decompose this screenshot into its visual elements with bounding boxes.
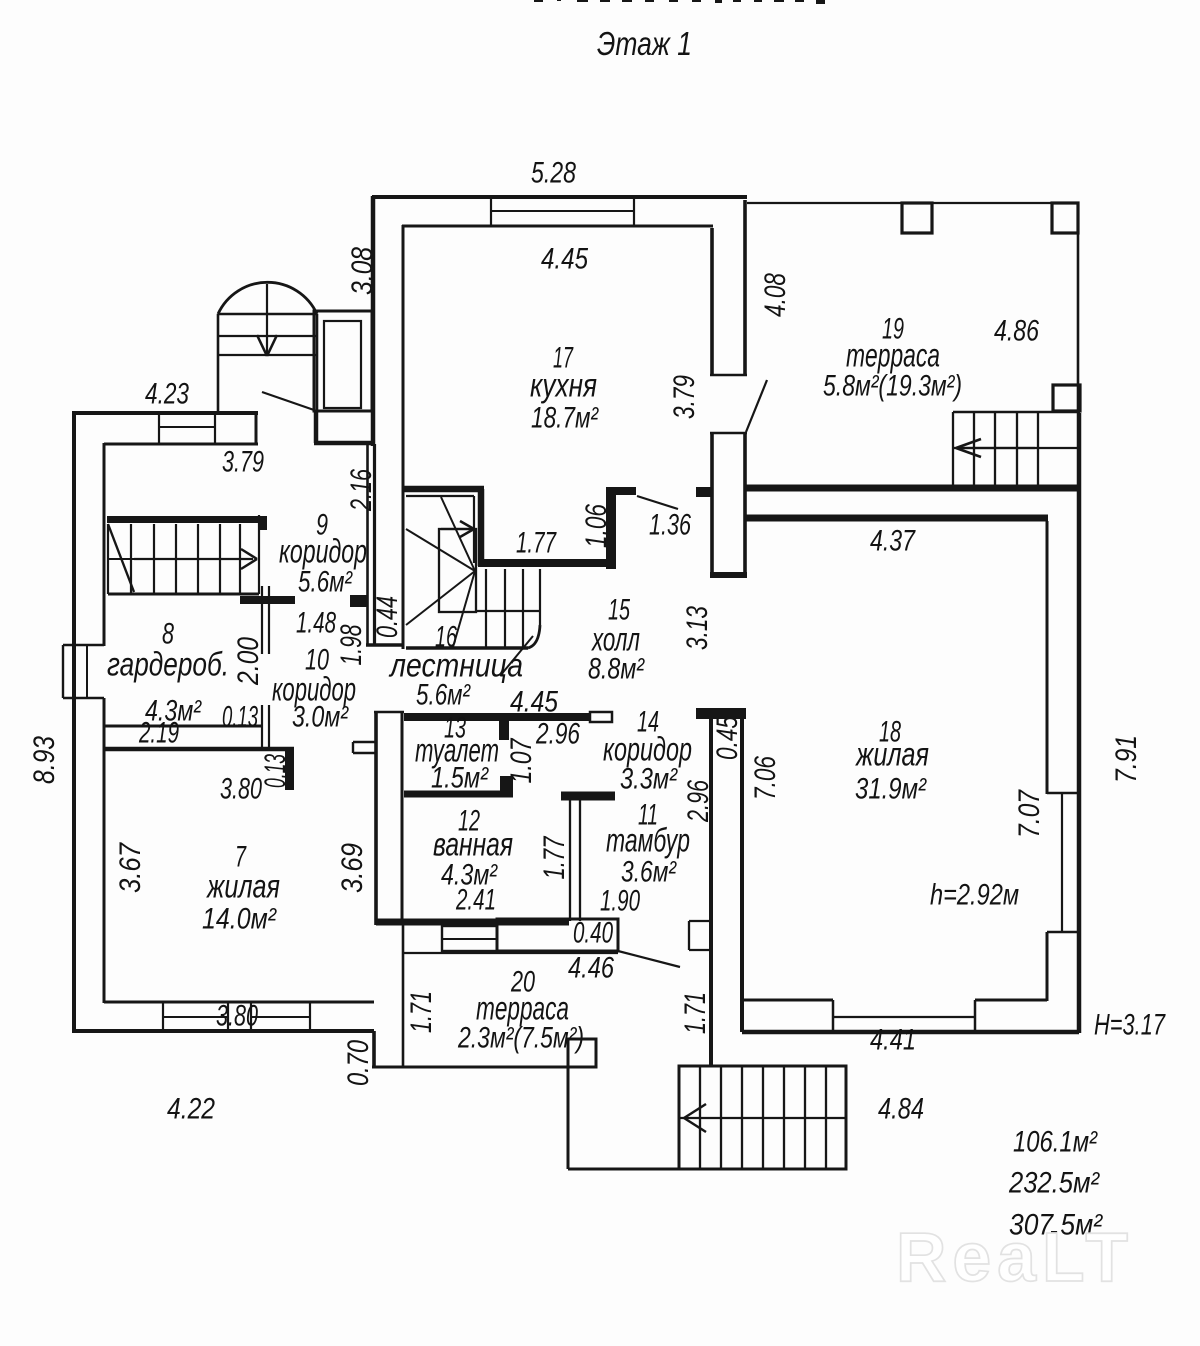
svg-text:1.90: 1.90	[600, 885, 640, 918]
svg-text:4.84: 4.84	[878, 1093, 924, 1126]
svg-text:4.23: 4.23	[145, 378, 189, 411]
svg-text:4.45: 4.45	[510, 686, 558, 719]
svg-text:106.1м²: 106.1м²	[1013, 1126, 1098, 1159]
svg-text:2.3м²(7.5м²): 2.3м²(7.5м²)	[457, 1022, 584, 1055]
svg-text:18.7м²: 18.7м²	[531, 402, 599, 435]
svg-text:H=3.17: H=3.17	[1094, 1009, 1166, 1042]
svg-text:5.8м²(19.3м²): 5.8м²(19.3м²)	[823, 370, 962, 403]
svg-text:1.77: 1.77	[516, 527, 557, 560]
svg-text:1.06: 1.06	[580, 504, 613, 548]
svg-text:2.00: 2.00	[232, 637, 265, 686]
svg-text:4.46: 4.46	[568, 952, 614, 985]
svg-text:7.06: 7.06	[749, 756, 782, 800]
svg-text:4.41: 4.41	[870, 1024, 916, 1057]
svg-text:коридор: коридор	[279, 533, 367, 570]
svg-text:3.67: 3.67	[114, 842, 147, 893]
svg-text:0.13: 0.13	[222, 701, 258, 734]
svg-text:жилая: жилая	[854, 736, 929, 773]
svg-text:0.40: 0.40	[573, 917, 613, 950]
svg-text:тамбур: тамбур	[606, 822, 690, 859]
svg-text:4.45: 4.45	[541, 243, 588, 276]
svg-text:8.93: 8.93	[28, 736, 61, 784]
svg-text:терраса: терраса	[846, 337, 940, 374]
svg-text:1.48: 1.48	[296, 607, 336, 640]
svg-text:3.79: 3.79	[668, 375, 701, 419]
svg-text:4.08: 4.08	[759, 273, 792, 317]
svg-text:1.71: 1.71	[405, 991, 438, 1033]
svg-text:3.6м²: 3.6м²	[621, 856, 677, 889]
svg-text:0.70: 0.70	[342, 1040, 375, 1086]
svg-text:5.28: 5.28	[531, 157, 576, 190]
svg-text:1.77: 1.77	[538, 836, 571, 880]
svg-text:2.16: 2.16	[345, 469, 378, 512]
svg-text:1.07: 1.07	[505, 737, 538, 783]
svg-text:7.07: 7.07	[1013, 789, 1046, 838]
svg-text:4.22: 4.22	[167, 1093, 215, 1126]
svg-text:3.80: 3.80	[220, 773, 262, 806]
svg-text:1.71: 1.71	[679, 992, 712, 1034]
svg-text:0.45: 0.45	[711, 716, 744, 760]
svg-text:0.44: 0.44	[371, 596, 404, 638]
svg-text:31.9м²: 31.9м²	[855, 773, 927, 806]
svg-text:h=2.92м: h=2.92м	[930, 879, 1019, 912]
svg-text:232.5м²: 232.5м²	[1008, 1167, 1100, 1200]
svg-text:3.3м²: 3.3м²	[620, 763, 678, 796]
svg-text:2.41: 2.41	[455, 884, 496, 917]
svg-text:1.36: 1.36	[649, 509, 691, 542]
svg-text:0.13: 0.13	[259, 754, 292, 788]
svg-text:4.86: 4.86	[994, 315, 1039, 348]
svg-text:3.13: 3.13	[681, 606, 714, 650]
svg-text:3.0м²: 3.0м²	[292, 701, 349, 734]
svg-text:гардероб.: гардероб.	[107, 646, 229, 683]
svg-text:2.19: 2.19	[138, 717, 179, 750]
svg-text:3.80: 3.80	[216, 1000, 258, 1033]
svg-text:14.0м²: 14.0м²	[202, 903, 277, 936]
svg-text:3.69: 3.69	[336, 843, 369, 893]
svg-text:4.37: 4.37	[870, 525, 916, 558]
svg-text:кухня: кухня	[530, 367, 597, 404]
svg-text:жилая: жилая	[205, 868, 280, 905]
svg-text:ReaLT: ReaLT	[896, 1218, 1134, 1296]
svg-text:ванная: ванная	[433, 826, 513, 863]
svg-text:1.5м²: 1.5м²	[431, 762, 489, 795]
svg-text:5.6м²: 5.6м²	[416, 679, 471, 712]
svg-text:1.98: 1.98	[335, 624, 368, 665]
svg-text:Этаж 1: Этаж 1	[597, 25, 692, 62]
svg-text:8.8м²: 8.8м²	[588, 653, 645, 686]
svg-text:3.79: 3.79	[222, 446, 264, 479]
svg-text:2.96: 2.96	[535, 718, 580, 751]
svg-text:7.91: 7.91	[1110, 735, 1143, 783]
svg-text:5.6м²: 5.6м²	[298, 566, 353, 599]
